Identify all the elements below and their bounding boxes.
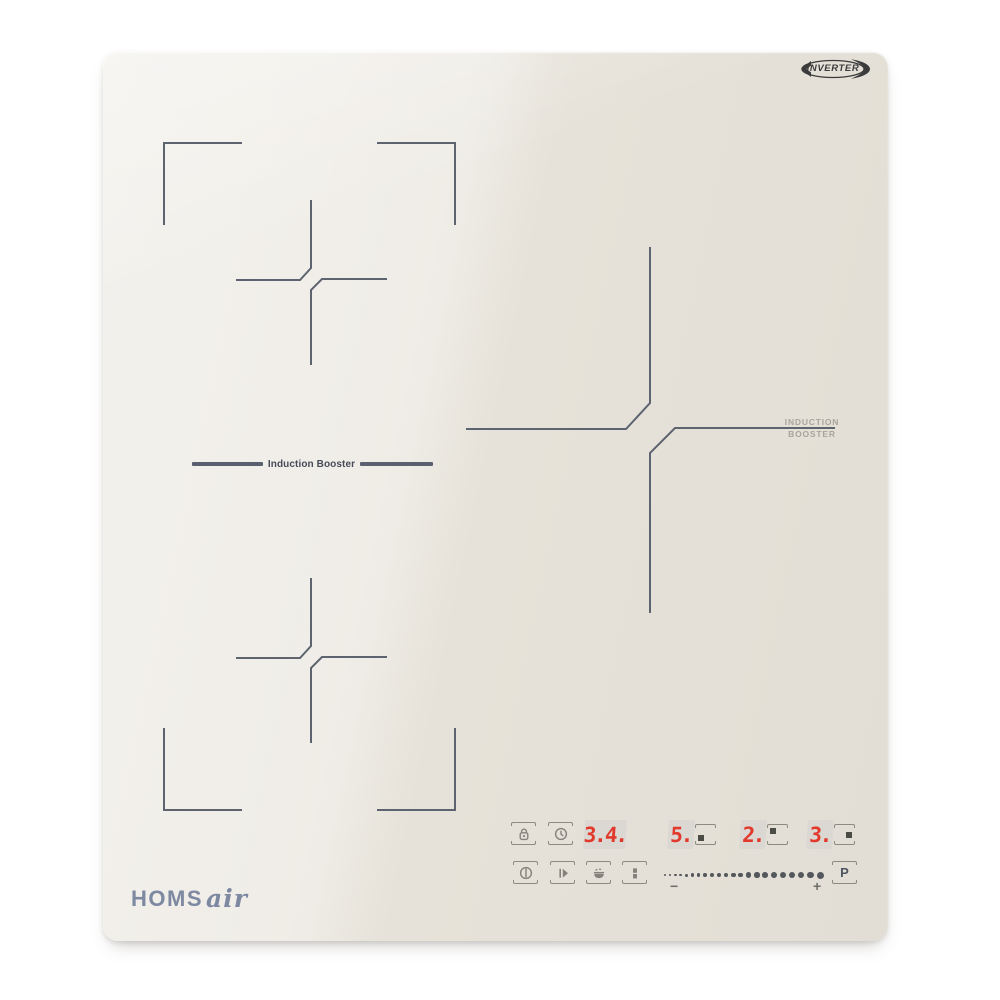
keep-warm-icon	[587, 862, 611, 884]
slider-dot[interactable]	[724, 873, 728, 877]
flex-zone-label: Induction Booster	[268, 459, 355, 470]
brand-logo: HOMS air	[131, 883, 248, 912]
slider-dot[interactable]	[691, 873, 694, 876]
slider-dot[interactable]	[669, 874, 671, 876]
zone3-position-indicator	[834, 824, 855, 845]
lock-icon	[512, 823, 536, 845]
boost-button[interactable]: P	[832, 861, 857, 884]
zone2-position-indicator	[767, 824, 788, 845]
inverter-badge-label: INVERTER	[794, 57, 872, 81]
boost-label: P	[832, 861, 857, 884]
clock-icon	[549, 823, 573, 845]
power-button[interactable]	[513, 861, 538, 884]
right-zone-label-line1: INDUCTION	[783, 416, 841, 428]
slider-dot[interactable]	[789, 872, 795, 878]
brand-word: HOMS	[131, 886, 203, 912]
play-icon	[551, 862, 575, 884]
brand-script: air	[206, 884, 248, 913]
induction-hob-glass	[103, 52, 888, 941]
pause-bridge-icon	[623, 862, 647, 884]
slider-plus-label[interactable]: +	[813, 879, 821, 893]
slider-dot[interactable]	[771, 872, 777, 878]
divider-line-left	[192, 462, 263, 466]
inverter-badge: INVERTER	[794, 57, 872, 81]
power-icon	[514, 862, 538, 884]
slider-dot[interactable]	[674, 874, 677, 877]
slider-dot[interactable]	[664, 874, 666, 876]
slider-dot[interactable]	[697, 873, 700, 876]
slider-dot[interactable]	[798, 872, 805, 879]
slider-dot[interactable]	[710, 873, 714, 877]
lock-button[interactable]	[511, 822, 536, 845]
slider-dot[interactable]	[679, 874, 682, 877]
product-photo: Induction Booster INDUCTION BOOSTER INVE…	[0, 0, 1000, 1000]
slider-dot[interactable]	[780, 872, 786, 878]
flex-zone-divider: Induction Booster	[192, 457, 433, 471]
slider-dot[interactable]	[754, 872, 759, 877]
slider-dot[interactable]	[746, 872, 751, 877]
burner-position-square	[698, 835, 704, 841]
slider-minus-label[interactable]: −	[670, 879, 678, 893]
start-pause-button[interactable]	[550, 861, 575, 884]
burner-position-square	[846, 832, 852, 838]
keep-warm-button[interactable]	[586, 861, 611, 884]
zone1-level-display[interactable]: 5.	[667, 820, 695, 849]
timer-display: 3.4.	[583, 820, 627, 849]
slider-dot[interactable]	[685, 874, 688, 877]
slider-dot[interactable]	[731, 873, 736, 878]
divider-line-right	[360, 462, 433, 466]
slider-dot[interactable]	[738, 873, 743, 878]
zone1-position-indicator	[695, 824, 716, 845]
slider-dot[interactable]	[717, 873, 721, 877]
slider-dot[interactable]	[703, 873, 707, 877]
zone3-level-display[interactable]: 3.	[806, 820, 834, 849]
zone2-level-display[interactable]: 2.	[739, 820, 767, 849]
right-zone-label: INDUCTION BOOSTER	[783, 416, 841, 440]
burner-position-square	[770, 828, 776, 834]
bridge-button[interactable]	[622, 861, 647, 884]
power-slider[interactable]	[664, 869, 824, 881]
timer-button[interactable]	[548, 822, 573, 845]
right-zone-label-line2: BOOSTER	[783, 428, 841, 440]
slider-dot[interactable]	[762, 872, 768, 878]
